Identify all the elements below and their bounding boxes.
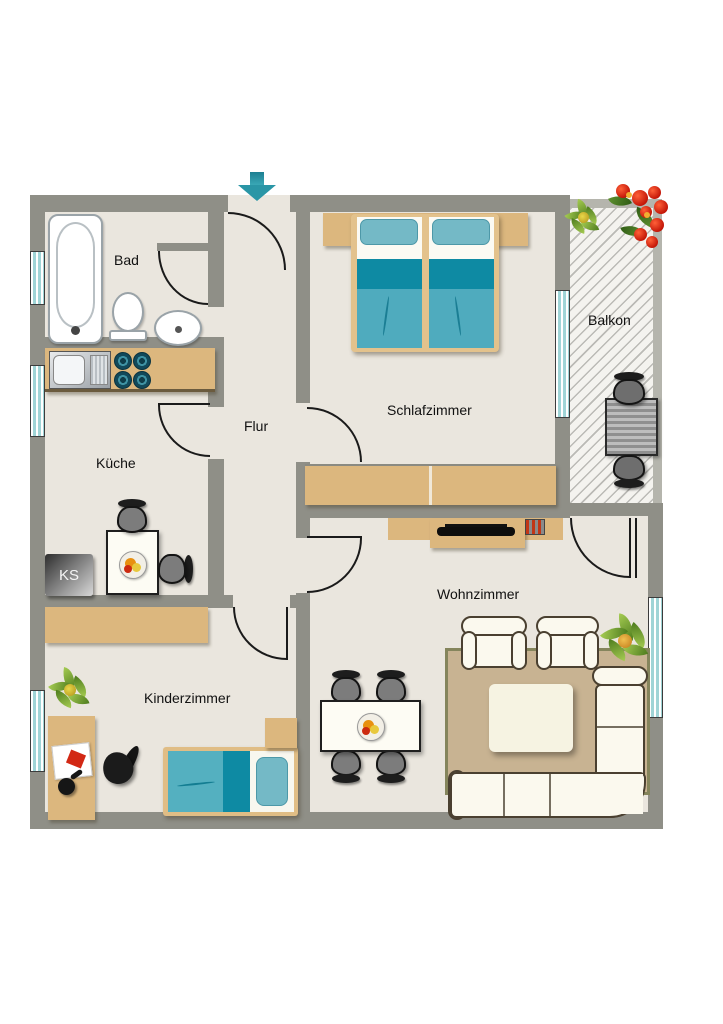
double-bed bbox=[351, 214, 499, 352]
dining-chair-seat bbox=[376, 750, 406, 776]
window-living-room bbox=[648, 597, 663, 718]
dining-chair bbox=[332, 774, 360, 783]
fridge-label: KS bbox=[59, 567, 79, 584]
window-bedroom-balcony bbox=[555, 290, 570, 418]
kids-bed bbox=[163, 747, 298, 816]
nightstand bbox=[265, 718, 297, 748]
balcony-chair-seat bbox=[613, 379, 645, 405]
pillow bbox=[256, 757, 288, 806]
plant-icon bbox=[600, 614, 650, 670]
burner-icon bbox=[133, 352, 151, 370]
toilet-tank bbox=[109, 330, 147, 341]
stove bbox=[113, 351, 151, 389]
kitchen-chair-seat bbox=[158, 554, 186, 584]
room-label-hallway: Flur bbox=[244, 418, 268, 434]
room-label-balcony: Balkon bbox=[588, 312, 631, 328]
wall-kitchen-kids-b bbox=[290, 595, 310, 608]
burner-icon bbox=[114, 352, 132, 370]
armchair bbox=[536, 616, 599, 670]
sofa-cushion-divider bbox=[597, 726, 643, 728]
shelf-books-icon bbox=[525, 519, 545, 535]
flowers-icon bbox=[604, 184, 668, 250]
balcony-table bbox=[605, 398, 658, 456]
room-label-kidsroom: Kinderzimmer bbox=[144, 690, 230, 706]
pillow bbox=[432, 219, 490, 245]
kitchen-sink-basin bbox=[53, 355, 85, 385]
wall-bath-hall-a bbox=[208, 212, 224, 307]
blanket bbox=[357, 259, 422, 289]
floorplan: KS bbox=[0, 0, 723, 1024]
toilet bbox=[112, 292, 144, 332]
sink-faucet-icon bbox=[175, 326, 182, 333]
bathtub-faucet-icon bbox=[71, 326, 80, 335]
blanket bbox=[429, 259, 494, 289]
room-label-bedroom: Schlafzimmer bbox=[387, 402, 472, 418]
tv-icon bbox=[437, 527, 515, 536]
balcony-chair bbox=[614, 479, 644, 488]
wall-kids-living bbox=[296, 593, 310, 812]
room-label-kitchen: Küche bbox=[96, 455, 136, 471]
burner-icon bbox=[133, 371, 151, 389]
kitchen-drainboard bbox=[90, 355, 108, 385]
window-bathroom bbox=[30, 251, 45, 305]
fruit-bowl-icon bbox=[357, 713, 385, 741]
window-kids-room bbox=[30, 690, 45, 772]
fridge: KS bbox=[45, 554, 93, 596]
wall-top-right bbox=[290, 195, 570, 212]
blanket bbox=[357, 289, 422, 348]
window-kitchen bbox=[30, 365, 45, 437]
room-label-bathroom: Bad bbox=[114, 252, 139, 268]
dining-chair-seat bbox=[331, 750, 361, 776]
wall-balcony-bottom bbox=[555, 503, 663, 516]
sofa-cushion-divider bbox=[503, 774, 505, 816]
office-chair bbox=[103, 744, 147, 790]
room-label-livingroom: Wohnzimmer bbox=[437, 586, 519, 602]
wall-top-left bbox=[30, 195, 228, 212]
entrance-arrow-icon bbox=[250, 172, 264, 185]
entrance-arrow-icon bbox=[238, 185, 276, 201]
plant-icon bbox=[566, 200, 602, 236]
sofa-cushion-divider bbox=[549, 774, 551, 816]
balcony-chair-seat bbox=[613, 455, 645, 481]
armchair bbox=[461, 616, 527, 670]
balcony-door-leaf bbox=[629, 518, 637, 578]
bathtub-basin bbox=[56, 222, 95, 328]
wall-kitchen-hall-b bbox=[208, 459, 224, 597]
desk-lamp-icon bbox=[58, 778, 75, 795]
wall-hall-bedroom bbox=[296, 212, 310, 403]
bedroom-wardrobe bbox=[305, 464, 556, 505]
coffee-table bbox=[489, 684, 573, 752]
dining-chair bbox=[377, 774, 405, 783]
kids-wardrobe bbox=[45, 607, 208, 643]
plant-icon bbox=[50, 668, 92, 714]
pillow bbox=[360, 219, 418, 245]
wall-bedroom-living bbox=[296, 505, 570, 518]
sofa-seam-patch bbox=[597, 774, 643, 814]
kitchen-chair-seat bbox=[117, 506, 147, 533]
blanket bbox=[429, 289, 494, 348]
fruit-bowl-icon bbox=[119, 551, 147, 579]
burner-icon bbox=[114, 371, 132, 389]
